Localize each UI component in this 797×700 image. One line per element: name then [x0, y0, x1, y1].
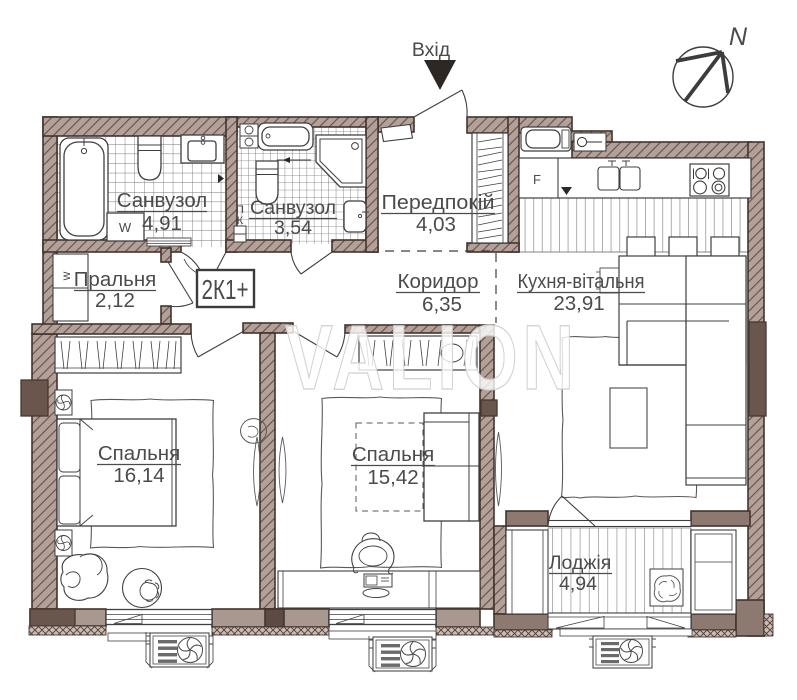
- svg-text:4,94: 4,94: [559, 573, 597, 595]
- svg-text:16,14: 16,14: [113, 464, 164, 487]
- svg-text:N: N: [729, 23, 748, 51]
- svg-text:Санвузол: Санвузол: [250, 197, 336, 219]
- svg-text:Спальня: Спальня: [352, 443, 434, 466]
- svg-text:2,12: 2,12: [95, 289, 135, 312]
- svg-text:F: F: [533, 172, 541, 187]
- svg-text:VALION: VALION: [285, 306, 579, 409]
- svg-text:4,03: 4,03: [416, 213, 456, 236]
- svg-text:Санвузол: Санвузол: [117, 189, 208, 212]
- svg-text:К: К: [237, 215, 244, 227]
- svg-text:3,54: 3,54: [274, 217, 312, 239]
- svg-text:Коридор: Коридор: [398, 270, 479, 293]
- svg-text:Спальня: Спальня: [98, 442, 180, 465]
- svg-text:w: w: [59, 271, 73, 281]
- svg-text:W: W: [119, 220, 132, 235]
- svg-text:15,42: 15,42: [367, 466, 418, 489]
- svg-text:Вхід: Вхід: [412, 39, 451, 61]
- svg-text:2К1+: 2К1+: [202, 274, 249, 305]
- svg-text:Лоджія: Лоджія: [549, 552, 612, 574]
- svg-text:Передпокій: Передпокій: [382, 191, 495, 214]
- svg-text:Кухня-вітальня: Кухня-вітальня: [518, 270, 645, 293]
- svg-text:4,91: 4,91: [142, 212, 182, 235]
- svg-text:Пральня: Пральня: [74, 268, 157, 291]
